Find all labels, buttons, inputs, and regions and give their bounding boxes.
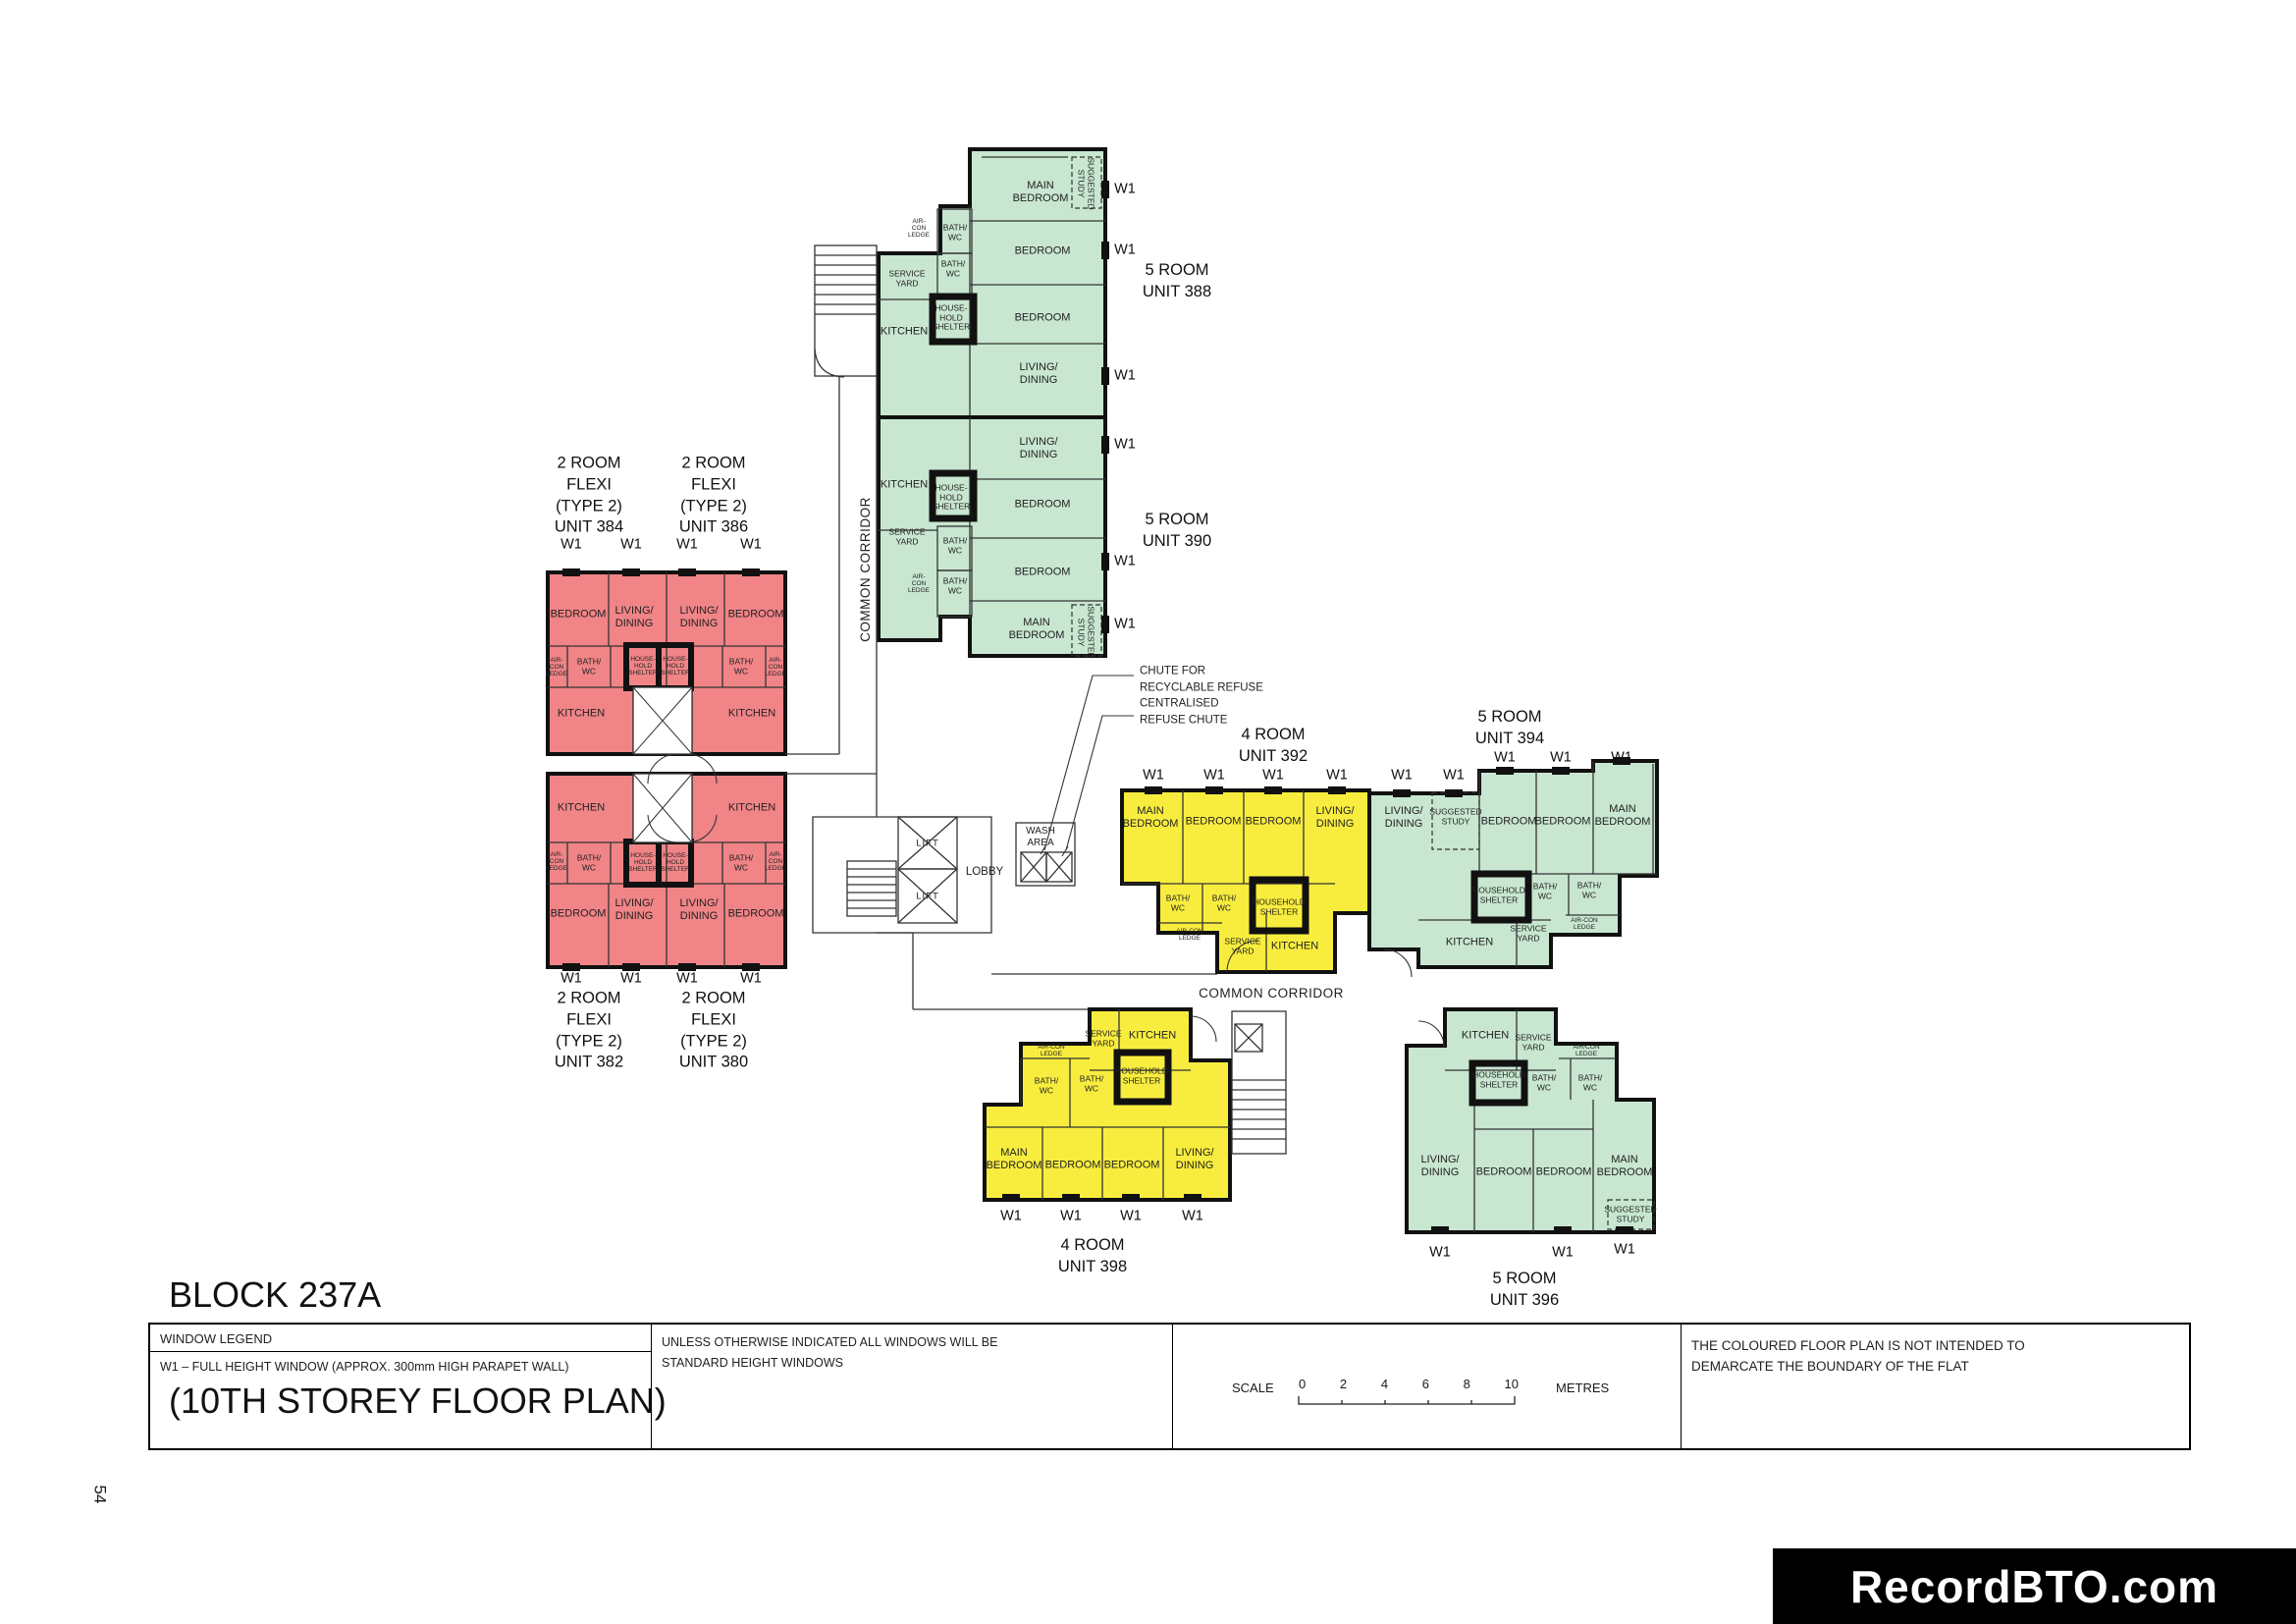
- w1-label: W1: [1114, 181, 1136, 197]
- w1-definition: W1 – FULL HEIGHT WINDOW (APPROX. 300mm H…: [160, 1360, 569, 1374]
- stairwell-398: [1232, 1011, 1286, 1154]
- wash-area-label: WASH AREA: [1026, 826, 1055, 849]
- u380-kitchen: KITCHEN: [728, 802, 775, 815]
- u392-kitchen: KITCHEN: [1271, 941, 1318, 953]
- u394-bath-wc: BATH/ WC: [1533, 882, 1557, 900]
- u388-bath-wc: BATH/ WC: [943, 223, 967, 242]
- u390-bath-wc: BATH/ WC: [943, 576, 967, 595]
- legend-divider: [651, 1325, 652, 1448]
- scale-bar: SCALE 0246810 METRES: [1232, 1373, 1644, 1412]
- w1-label: W1: [1326, 767, 1348, 784]
- u398-bath-wc: BATH/ WC: [1080, 1074, 1103, 1093]
- u392-living-dining: LIVING/ DINING: [1315, 805, 1354, 831]
- w1-label: W1: [1203, 767, 1225, 784]
- u392-aircon-ledge: AIR-CON LEDGE: [1176, 929, 1202, 943]
- u398-living-dining: LIVING/ DINING: [1175, 1147, 1213, 1172]
- u394-household-shelter: HOUSEHOLD SHELTER: [1472, 886, 1525, 904]
- u394-main-bedroom: MAIN BEDROOM: [1595, 803, 1651, 829]
- w1-label: W1: [1143, 767, 1164, 784]
- u384-aircon-ledge: AIR- CON LEDGE: [546, 658, 567, 677]
- w1-label: W1: [1114, 436, 1136, 453]
- u394-bath-wc: BATH/ WC: [1577, 881, 1601, 899]
- scale-tick: 2: [1340, 1377, 1347, 1391]
- u394-kitchen: KITCHEN: [1446, 937, 1493, 949]
- lift-lobby-shape: [813, 817, 991, 933]
- u390-bath-wc: BATH/ WC: [943, 536, 967, 555]
- watermark-banner: RecordBTO.com: [1773, 1548, 2296, 1624]
- common-corridor-vertical: COMMON CORRIDOR: [858, 497, 874, 642]
- u396-bedroom: BEDROOM: [1536, 1166, 1592, 1179]
- common-corridor-horizontal: COMMON CORRIDOR: [1199, 986, 1344, 1001]
- u394-living-dining: LIVING/ DINING: [1384, 805, 1422, 831]
- unit-380-title: 2 ROOM FLEXI (TYPE 2) UNIT 380: [679, 988, 748, 1073]
- w1-label: W1: [561, 970, 582, 987]
- u386-bath-wc: BATH/ WC: [729, 657, 753, 676]
- w1-label: W1: [1550, 749, 1572, 766]
- u392-service-yard: SERVICE YARD: [1224, 937, 1260, 955]
- w1-label: W1: [1611, 749, 1632, 766]
- w1-label: W1: [1391, 767, 1413, 784]
- u390-kitchen: KITCHEN: [881, 479, 928, 492]
- u382-living-dining: LIVING/ DINING: [614, 897, 653, 923]
- floor-plan-page: 2 ROOM FLEXI (TYPE 2) UNIT 3842 ROOM FLE…: [0, 0, 2296, 1624]
- u398-kitchen: KITCHEN: [1129, 1030, 1176, 1043]
- scale-tick: 0: [1299, 1377, 1306, 1391]
- u398-main-bedroom: MAIN BEDROOM: [987, 1147, 1042, 1172]
- u392-household-shelter: HOUSEHOLD SHELTER: [1253, 897, 1306, 916]
- legend-header-underline: [150, 1351, 651, 1352]
- u388-service-yard: SERVICE YARD: [888, 269, 925, 288]
- w1-label: W1: [561, 536, 582, 553]
- u392-bath-wc: BATH/ WC: [1166, 893, 1190, 912]
- u388-bedroom: BEDROOM: [1015, 312, 1071, 325]
- w1-label: W1: [620, 536, 642, 553]
- u390-service-yard: SERVICE YARD: [888, 527, 925, 546]
- u396-service-yard: SERVICE YARD: [1515, 1033, 1551, 1052]
- u388-aircon-ledge: AIR- CON LEDGE: [908, 219, 930, 239]
- u384-household-shelter: HOUSE- HOLD SHELTER: [628, 657, 658, 677]
- u396-household-shelter: HOUSEHOLD SHELTER: [1472, 1070, 1525, 1089]
- unit-382-title: 2 ROOM FLEXI (TYPE 2) UNIT 382: [555, 988, 623, 1073]
- w1-label: W1: [1552, 1244, 1574, 1261]
- u382-kitchen: KITCHEN: [558, 802, 605, 815]
- u380-aircon-ledge: AIR- CON LEDGE: [765, 852, 786, 872]
- unit-392-title: 4 ROOM UNIT 392: [1239, 725, 1308, 768]
- w1-label: W1: [1262, 767, 1284, 784]
- scale-tick: 8: [1464, 1377, 1470, 1391]
- u398-bedroom: BEDROOM: [1104, 1160, 1160, 1172]
- u392-bedroom: BEDROOM: [1246, 816, 1302, 829]
- u398-bath-wc: BATH/ WC: [1035, 1076, 1058, 1095]
- scale-tick-labels: 0246810: [1299, 1377, 1519, 1391]
- u392-bedroom: BEDROOM: [1186, 816, 1242, 829]
- w1-label: W1: [740, 536, 762, 553]
- w1-label: W1: [740, 970, 762, 987]
- w1-label: W1: [676, 970, 698, 987]
- u390-household-shelter: HOUSE- HOLD SHELTER: [933, 484, 971, 513]
- u394-service-yard: SERVICE YARD: [1510, 924, 1546, 943]
- coloured-plan-disclaimer: THE COLOURED FLOOR PLAN IS NOT INTENDED …: [1691, 1336, 2025, 1378]
- u396-bedroom: BEDROOM: [1476, 1166, 1532, 1179]
- unit-398-title: 4 ROOM UNIT 398: [1058, 1235, 1127, 1278]
- u396-living-dining: LIVING/ DINING: [1420, 1154, 1459, 1179]
- u388-main-bedroom: MAIN BEDROOM: [1013, 180, 1069, 205]
- windows-note: UNLESS OTHERWISE INDICATED ALL WINDOWS W…: [662, 1332, 997, 1373]
- u390-bedroom: BEDROOM: [1015, 499, 1071, 512]
- scale-tick: 4: [1381, 1377, 1388, 1391]
- w1-label: W1: [1114, 553, 1136, 569]
- w1-label: W1: [676, 536, 698, 553]
- w1-label: W1: [1060, 1208, 1082, 1224]
- w1-label: W1: [1429, 1244, 1451, 1261]
- u382-household-shelter: HOUSE- HOLD SHELTER: [628, 853, 658, 873]
- u384-bedroom: BEDROOM: [551, 609, 607, 622]
- scale-unit: METRES: [1556, 1380, 1609, 1395]
- u384-kitchen: KITCHEN: [558, 708, 605, 721]
- w1-label: W1: [1114, 242, 1136, 258]
- unit-386-title: 2 ROOM FLEXI (TYPE 2) UNIT 386: [679, 453, 748, 538]
- u398-service-yard: SERVICE YARD: [1085, 1029, 1121, 1048]
- w1-label: W1: [1494, 749, 1516, 766]
- unit-394-title: 5 ROOM UNIT 394: [1475, 707, 1544, 750]
- w1-label: W1: [1182, 1208, 1203, 1224]
- lift-label: LIFT: [916, 891, 939, 901]
- u390-main-bedroom: MAIN BEDROOM: [1009, 617, 1065, 642]
- u380-bedroom: BEDROOM: [728, 908, 784, 921]
- w1-label: W1: [1443, 767, 1465, 784]
- u396-bath-wc: BATH/ WC: [1532, 1073, 1556, 1092]
- u396-kitchen: KITCHEN: [1462, 1030, 1509, 1043]
- lift-label: LIFT: [916, 838, 939, 848]
- u392-bath-wc: BATH/ WC: [1212, 893, 1236, 912]
- u394-suggested-study: SUGGESTED STUDY: [1429, 807, 1481, 826]
- u388-household-shelter: HOUSE- HOLD SHELTER: [933, 304, 971, 333]
- u388-bedroom: BEDROOM: [1015, 245, 1071, 258]
- u384-living-dining: LIVING/ DINING: [614, 605, 653, 630]
- chute-note: CHUTE FOR RECYCLABLE REFUSE CENTRALISED …: [1140, 664, 1263, 730]
- legend-table: WINDOW LEGEND W1 – FULL HEIGHT WINDOW (A…: [148, 1323, 2191, 1450]
- u392-main-bedroom: MAIN BEDROOM: [1123, 805, 1179, 831]
- u396-aircon-ledge: AIR/CON LEDGE: [1573, 1045, 1599, 1058]
- watermark-text: RecordBTO.com: [1850, 1560, 2218, 1613]
- unit-396-title: 5 ROOM UNIT 396: [1490, 1269, 1559, 1312]
- u388-living-dining: LIVING/ DINING: [1019, 361, 1057, 387]
- u386-kitchen: KITCHEN: [728, 708, 775, 721]
- u382-bedroom: BEDROOM: [551, 908, 607, 921]
- u390-suggested-study: SUGGESTED STUDY: [1076, 606, 1095, 658]
- w1-label: W1: [1114, 616, 1136, 632]
- u386-bedroom: BEDROOM: [728, 609, 784, 622]
- u394-bedroom: BEDROOM: [1481, 816, 1537, 829]
- u394-aircon-ledge: AIR-CON LEDGE: [1571, 918, 1597, 932]
- w1-label: W1: [1000, 1208, 1022, 1224]
- w1-label: W1: [1120, 1208, 1142, 1224]
- unit-388-title: 5 ROOM UNIT 388: [1143, 260, 1211, 303]
- u382-bath-wc: BATH/ WC: [577, 853, 601, 872]
- w1-label: W1: [620, 970, 642, 987]
- u396-bath-wc: BATH/ WC: [1578, 1073, 1602, 1092]
- u386-living-dining: LIVING/ DINING: [679, 605, 718, 630]
- u398-household-shelter: HOUSEHOLD SHELTER: [1115, 1066, 1168, 1085]
- w1-label: W1: [1614, 1241, 1635, 1258]
- u390-living-dining: LIVING/ DINING: [1019, 436, 1057, 461]
- u396-main-bedroom: MAIN BEDROOM: [1597, 1154, 1653, 1179]
- lobby-label: LOBBY: [966, 866, 1003, 880]
- legend-divider: [1681, 1325, 1682, 1448]
- u382-aircon-ledge: AIR- CON LEDGE: [546, 852, 567, 872]
- unit-390-title: 5 ROOM UNIT 390: [1143, 510, 1211, 553]
- scale-label: SCALE: [1232, 1380, 1274, 1395]
- scale-ruler: [1293, 1394, 1528, 1408]
- u398-aircon-ledge: AIR-CON LEDGE: [1038, 1045, 1064, 1058]
- u386-household-shelter: HOUSE- HOLD SHELTER: [661, 657, 690, 677]
- u398-bedroom: BEDROOM: [1045, 1160, 1101, 1172]
- w1-label: W1: [1114, 367, 1136, 384]
- u390-aircon-ledge: AIR- CON LEDGE: [908, 574, 930, 594]
- u380-household-shelter: HOUSE- HOLD SHELTER: [661, 853, 690, 873]
- legend-divider: [1172, 1325, 1173, 1448]
- u390-bedroom: BEDROOM: [1015, 567, 1071, 579]
- u394-bedroom: BEDROOM: [1535, 816, 1591, 829]
- scale-tick: 6: [1422, 1377, 1429, 1391]
- u388-bath-wc: BATH/ WC: [941, 259, 965, 278]
- unit-384-title: 2 ROOM FLEXI (TYPE 2) UNIT 384: [555, 453, 623, 538]
- u380-bath-wc: BATH/ WC: [729, 853, 753, 872]
- page-number: 54: [89, 1486, 109, 1504]
- window-legend-title: WINDOW LEGEND: [160, 1331, 272, 1346]
- u396-suggested-study: SUGGESTED STUDY: [1604, 1205, 1656, 1223]
- block-title: BLOCK 237A: [169, 1274, 381, 1315]
- scale-tick: 10: [1505, 1377, 1519, 1391]
- u380-living-dining: LIVING/ DINING: [679, 897, 718, 923]
- u384-bath-wc: BATH/ WC: [577, 657, 601, 676]
- u388-suggested-study: SUGGESTED STUDY: [1076, 157, 1095, 209]
- u386-aircon-ledge: AIR- CON LEDGE: [765, 658, 786, 677]
- u388-kitchen: KITCHEN: [881, 326, 928, 339]
